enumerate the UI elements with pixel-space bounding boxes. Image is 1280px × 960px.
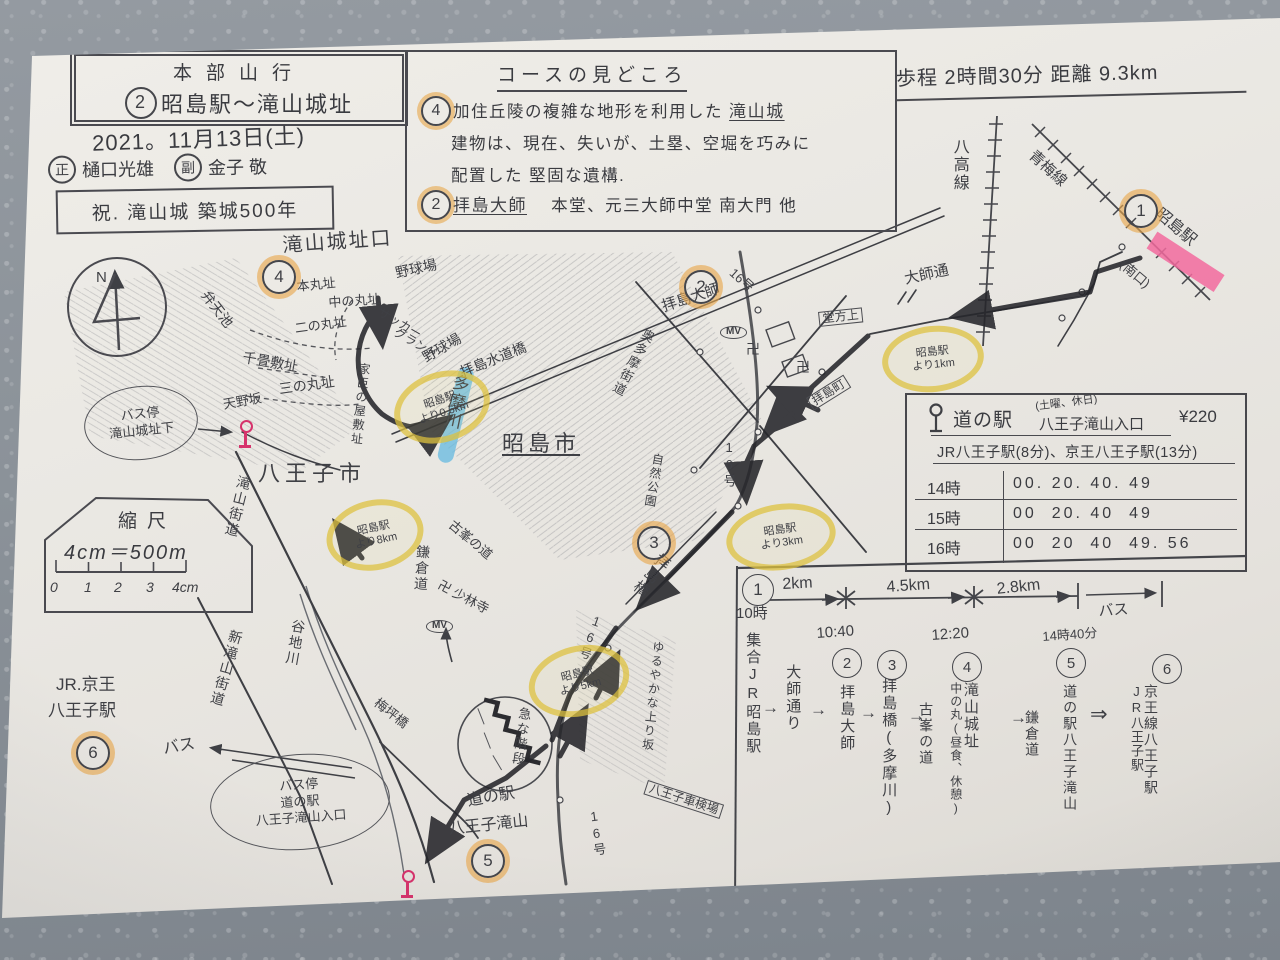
map-label: 本丸址 (296, 276, 336, 294)
map-label: JR.京王 (56, 676, 116, 694)
map-label: 堂方上 (818, 307, 863, 326)
distance-note: 昭島駅より0.6km (385, 359, 500, 456)
map-label: 二の丸址 (294, 315, 347, 336)
map-label: 自然公園 (642, 452, 664, 509)
map-waypoint-number: 5 (471, 844, 505, 878)
map-label: 滝山城址口 (282, 228, 393, 257)
map-waypoint-number: 1 (1124, 194, 1158, 228)
map-waypoint-number: 6 (76, 736, 110, 770)
map-label: 道の駅 (466, 786, 516, 811)
map-label: 野球場 (394, 257, 438, 280)
map-label: 古峯の道 (446, 518, 495, 562)
map-label: 昭島市 (502, 432, 580, 455)
bs-head (240, 420, 253, 433)
map-label: MV (720, 326, 747, 339)
map-label: N (96, 270, 107, 286)
map-label: 八王子車検場 (643, 780, 724, 819)
map-label: バス (162, 736, 196, 758)
distance-note: 昭島駅より3km (722, 497, 840, 578)
map-label: 1 (84, 580, 92, 595)
map-label: 昭島駅 (1151, 206, 1199, 250)
map-label: 卍 (796, 360, 810, 375)
map-annotations: 八高線青梅線昭島駅(南口)大師通滝山城址口本丸址中の丸址二の丸址弁天池千畳敷址三… (0, 0, 1280, 960)
bus-stop-marker-icon (400, 870, 414, 900)
paper-sheet: 本部山行 2 昭島駅〜滝山城址 2021。11月13日(土) 正 樋口光雄 副 … (0, 0, 1280, 960)
bs-base (239, 445, 251, 448)
map-waypoint-number: 2 (684, 270, 718, 304)
map-label: 新滝山街道 (208, 628, 244, 709)
map-label: 谷地川 (284, 618, 307, 668)
map-label: 16号 (727, 266, 757, 295)
map-waypoint-number: 4 (262, 260, 296, 294)
map-label: 鎌倉道 (413, 544, 431, 593)
map-label: 急な階段 (510, 706, 532, 767)
map-label: 天野坂 (222, 391, 263, 411)
map-label: 八王子駅 (48, 702, 116, 720)
photo-scene: 本部山行 2 昭島駅〜滝山城址 2021。11月13日(土) 正 樋口光雄 副 … (0, 0, 1280, 960)
map-label: 奥多摩街道 (609, 326, 656, 399)
map-label: 八王子市 (258, 462, 366, 485)
map-label: 野球場 (420, 331, 464, 365)
map-label: 卍 少林寺 (436, 578, 492, 616)
map-label: 滝山街道 (223, 474, 253, 540)
map-label: 卍 (746, 342, 760, 357)
map-label: 16号 (586, 808, 606, 858)
map-label: 三の丸址 (278, 374, 335, 396)
bus-stop-callout-line: 滝山城址下 (109, 420, 175, 444)
map-label: 中の丸址 (328, 292, 381, 309)
map-label: 弁天池 (198, 288, 235, 330)
bs-base (401, 895, 413, 898)
map-label: 家臣の屋敷址 (349, 362, 370, 447)
map-waypoint-number: 3 (637, 526, 671, 560)
map-label: 拝島町 (806, 375, 851, 411)
bus-stop-marker-icon (238, 420, 252, 450)
bus-stop-callout-line: 八王子滝山入口 (255, 807, 347, 830)
map-label: MV (426, 620, 453, 633)
bs-pole (244, 431, 247, 445)
map-label: 2 (114, 580, 122, 595)
map-label: 八王子滝山 (448, 814, 529, 839)
bus-stop-callout: バス停道の駅八王子滝山入口 (207, 748, 393, 856)
distance-note: 昭島駅より1km (879, 321, 987, 397)
map-label: 八高線 (950, 138, 967, 192)
map-label: 3 (146, 580, 154, 595)
bs-head (402, 870, 415, 883)
map-label: ゆるやかな上り坂 (640, 640, 664, 753)
map-label: 梅坪橋 (372, 696, 411, 731)
map-label: (南口) (1117, 258, 1152, 291)
distance-note: 昭島駅より5km (521, 635, 637, 728)
bus-stop-callout: バス停滝山城址下 (80, 380, 201, 466)
bs-pole (406, 881, 409, 895)
map-label: 4cm (172, 580, 198, 595)
map-label: 青梅線 (1025, 148, 1069, 190)
map-label: 0 (50, 580, 58, 595)
map-label: 大師通 (903, 263, 950, 288)
map-label: 16号 (722, 440, 736, 489)
map-label: 千畳敷址 (241, 350, 299, 374)
